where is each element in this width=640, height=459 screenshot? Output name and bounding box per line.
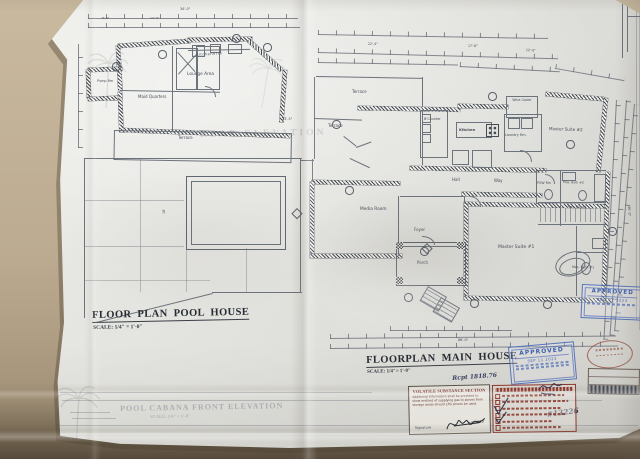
volatile-substance-box: VOLATILE SUBSTANCE SECTION Additional In… xyxy=(408,384,491,435)
room-label-lounge: Lounge Area xyxy=(187,73,214,78)
dim-label: 14'-0" xyxy=(150,17,159,20)
room-label-bcounter: B'Counter xyxy=(424,118,441,122)
revision-table xyxy=(588,368,640,395)
wall-segment xyxy=(310,254,402,258)
handwritten-signature xyxy=(444,413,488,432)
plan-line xyxy=(316,76,422,79)
plan-outline xyxy=(508,118,520,129)
blueprint-sheet: REAR ELEVATION POOL CABANA FRONT ELEVATI… xyxy=(0,0,640,459)
room-label-was-closet: Was. Closet xyxy=(567,206,586,210)
plan-line xyxy=(84,158,85,318)
dim-label: 13'-5" xyxy=(282,118,292,122)
wall-segment xyxy=(310,182,314,256)
closet-rail xyxy=(540,208,602,222)
plan-line xyxy=(140,158,141,292)
dim-label: 34'-0" xyxy=(180,8,190,12)
door-swing xyxy=(470,196,481,207)
room-label-foyer: Foyer xyxy=(414,228,425,232)
wall-segment xyxy=(312,180,400,185)
fold-highlight-line xyxy=(58,433,640,435)
room-label-wine-cooler: Wine Cooler xyxy=(509,99,535,103)
room-label-terrace-pool: Terrace xyxy=(178,136,193,140)
room-label-way: Way xyxy=(494,179,503,183)
room-label-kitchen: Kitchen xyxy=(459,128,475,132)
wall-segment xyxy=(188,37,252,42)
plan-line xyxy=(350,158,370,168)
handwritten-checkmarks xyxy=(491,394,511,424)
wall-segment xyxy=(279,70,286,122)
table-row-dark xyxy=(589,385,639,394)
reference-tag xyxy=(263,43,272,52)
reference-tag xyxy=(543,300,552,309)
plan-line xyxy=(538,170,606,171)
plan-outline xyxy=(472,150,492,168)
plan-outline xyxy=(422,134,431,143)
red-text-line xyxy=(503,426,561,429)
room-label-hall: Hall xyxy=(452,178,460,182)
checklist-row xyxy=(496,424,574,430)
plan-line xyxy=(84,246,184,247)
plan-outline xyxy=(452,150,469,165)
dimension-line xyxy=(390,326,512,331)
plan-line xyxy=(84,158,302,159)
reference-tag xyxy=(112,62,121,71)
room-label-master-suite-1: Master Suite #1 xyxy=(498,246,534,251)
dim-label: 8'-0" xyxy=(102,17,109,20)
dim-label: 22'-4" xyxy=(368,43,378,47)
room-label-laundry: Laundry Rm. xyxy=(505,134,527,138)
red-text-line xyxy=(502,400,568,403)
signature-label: Signature xyxy=(415,426,431,430)
dimension-line xyxy=(555,64,625,81)
wall-segment xyxy=(118,92,123,132)
reference-tag xyxy=(566,140,575,149)
reference-tag xyxy=(404,293,413,302)
wall-segment xyxy=(118,39,190,48)
ghost-line xyxy=(70,412,110,413)
plan-line xyxy=(186,248,187,292)
dimension-line xyxy=(330,332,616,339)
fixture-outline xyxy=(544,189,553,200)
room-label-pump: Pump Rm xyxy=(97,80,113,84)
plan-outline xyxy=(191,181,281,245)
room-label-media: Media Room xyxy=(360,208,387,213)
room-label-terrace-upper: Terrace xyxy=(352,90,367,94)
plan-outline xyxy=(594,174,606,202)
wall-segment xyxy=(458,104,508,108)
plan-outline xyxy=(592,238,606,249)
dimension-line xyxy=(78,44,83,148)
plan-outline xyxy=(228,44,242,54)
hatch-block xyxy=(457,277,464,284)
plan-line xyxy=(212,292,302,293)
approved-stamp-inner-border xyxy=(511,344,575,382)
seal-text-line xyxy=(596,353,624,357)
reference-tag xyxy=(488,92,497,101)
plan-line xyxy=(300,160,314,161)
dimension-line xyxy=(88,14,298,19)
volatile-body: Additional Information shall be provided… xyxy=(409,392,489,407)
stove-burners xyxy=(486,124,499,137)
blueprint-photo: REAR ELEVATION POOL CABANA FRONT ELEVATI… xyxy=(0,0,640,459)
dimension-line xyxy=(318,30,548,39)
plan-line xyxy=(246,248,247,292)
plan-line xyxy=(538,224,606,225)
reference-tag xyxy=(470,299,479,308)
wall-segment xyxy=(86,70,90,98)
plan-line xyxy=(172,46,173,130)
plan-line xyxy=(84,280,210,281)
plan-line xyxy=(636,0,637,320)
room-label-mas-bath-2: Mas. Bath #2 xyxy=(563,181,584,185)
red-checklist-stamp xyxy=(492,384,577,433)
hatch-block xyxy=(396,277,403,284)
plan-outline xyxy=(422,124,431,133)
dimension-line xyxy=(460,62,560,72)
plan-line xyxy=(343,136,356,147)
plan-line xyxy=(356,142,371,148)
room-label-porch: Porch xyxy=(417,261,428,265)
wall-segment xyxy=(596,98,607,172)
plan-line xyxy=(400,196,464,197)
seal-text-line xyxy=(596,347,624,351)
fixture-outline xyxy=(578,190,587,201)
reference-tag xyxy=(420,247,429,256)
dimension-line xyxy=(330,341,618,349)
approved-stamp-inner-border xyxy=(583,287,640,318)
checkbox-icon xyxy=(496,425,501,430)
room-label-terrace-lower: Terrace xyxy=(328,124,343,128)
plan-line xyxy=(627,0,628,52)
plan-line xyxy=(300,158,301,292)
wall-segment xyxy=(546,92,604,101)
plan-line xyxy=(622,0,623,58)
dim-label: 12'-0" xyxy=(526,49,536,53)
dim-label: 86'-0" xyxy=(458,339,468,343)
dimension-line xyxy=(318,48,558,59)
reference-tag xyxy=(345,186,354,195)
reference-tag xyxy=(232,34,241,43)
reference-tag xyxy=(158,50,167,59)
plan-line xyxy=(536,170,537,204)
room-label-powder: POW Rm xyxy=(537,182,551,186)
dim-label: 46'-0" xyxy=(626,206,630,216)
ghost-line xyxy=(72,418,116,419)
ghost-cabana-scale: SCALE: 1/4" = 1'-0" xyxy=(150,413,191,419)
plan-outline xyxy=(521,118,533,129)
dim-label: 17'-8" xyxy=(468,45,478,49)
ghost-line xyxy=(60,392,372,393)
dimension-line xyxy=(88,23,300,28)
approved-stamp-right: APPROVED AUG 21 2023 xyxy=(581,284,640,321)
hatch-block xyxy=(457,242,464,249)
hatch-block xyxy=(396,242,403,249)
dimension-line xyxy=(318,58,458,65)
plan-line xyxy=(538,202,606,203)
room-label-maid-quarters: Maid Quarters xyxy=(138,95,166,99)
dim-label: 18' xyxy=(163,209,167,214)
room-label-mas-bath-1: Mas. Bath #1 xyxy=(572,266,594,270)
wall-segment xyxy=(88,96,122,101)
red-text-line xyxy=(503,413,567,416)
pool-house-scale: SCALE: 1/4" = 1'-0" xyxy=(93,324,143,331)
plan-line xyxy=(84,200,184,201)
